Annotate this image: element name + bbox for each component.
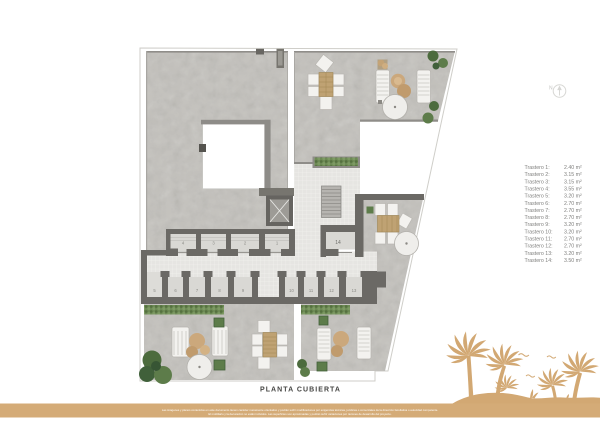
svg-text:2.70 m²: 2.70 m² xyxy=(564,208,582,214)
svg-text:3.15 m²: 3.15 m² xyxy=(564,172,582,178)
svg-text:3.15 m²: 3.15 m² xyxy=(564,179,582,185)
svg-text:Trastero 4:: Trastero 4: xyxy=(525,186,550,192)
svg-text:3.20 m²: 3.20 m² xyxy=(564,229,582,235)
svg-text:Trastero 9:: Trastero 9: xyxy=(525,222,550,228)
svg-text:Trastero 1:: Trastero 1: xyxy=(525,165,550,171)
svg-text:13: 13 xyxy=(352,288,357,293)
svg-text:3.20 m²: 3.20 m² xyxy=(564,251,582,257)
svg-text:Trastero 11:: Trastero 11: xyxy=(525,236,553,242)
svg-text:Trastero 5:: Trastero 5: xyxy=(525,194,550,200)
svg-text:2.40 m²: 2.40 m² xyxy=(564,165,582,171)
svg-text:10: 10 xyxy=(289,288,294,293)
svg-text:Trastero 8:: Trastero 8: xyxy=(525,215,550,221)
svg-text:14: 14 xyxy=(335,240,341,246)
svg-text:2.70 m²: 2.70 m² xyxy=(564,215,582,221)
svg-text:Trastero 12:: Trastero 12: xyxy=(525,244,553,250)
svg-text:N: N xyxy=(549,86,553,92)
svg-text:3.20 m²: 3.20 m² xyxy=(564,194,582,200)
svg-text:Trastero 10:: Trastero 10: xyxy=(525,229,553,235)
svg-text:2.70 m²: 2.70 m² xyxy=(564,244,582,250)
svg-text:11: 11 xyxy=(309,288,314,293)
svg-text:3.20 m²: 3.20 m² xyxy=(564,222,582,228)
svg-text:Trastero 14:: Trastero 14: xyxy=(525,258,553,264)
svg-text:Trastero 7:: Trastero 7: xyxy=(525,208,550,214)
svg-text:El mobiliario y la decoración: El mobiliario y la decoración no están i… xyxy=(208,412,391,416)
svg-text:Trastero 6:: Trastero 6: xyxy=(525,201,550,207)
svg-text:12: 12 xyxy=(329,288,334,293)
svg-text:Trastero 3:: Trastero 3: xyxy=(525,179,550,185)
svg-text:3.50 m²: 3.50 m² xyxy=(564,258,582,264)
svg-text:2.70 m²: 2.70 m² xyxy=(564,236,582,242)
svg-text:2.70 m²: 2.70 m² xyxy=(564,201,582,207)
svg-text:Trastero 2:: Trastero 2: xyxy=(525,172,550,178)
svg-text:Trastero 13:: Trastero 13: xyxy=(525,251,553,257)
svg-text:PLANTA CUBIERTA: PLANTA CUBIERTA xyxy=(260,387,341,394)
svg-text:3.55 m²: 3.55 m² xyxy=(564,186,582,192)
